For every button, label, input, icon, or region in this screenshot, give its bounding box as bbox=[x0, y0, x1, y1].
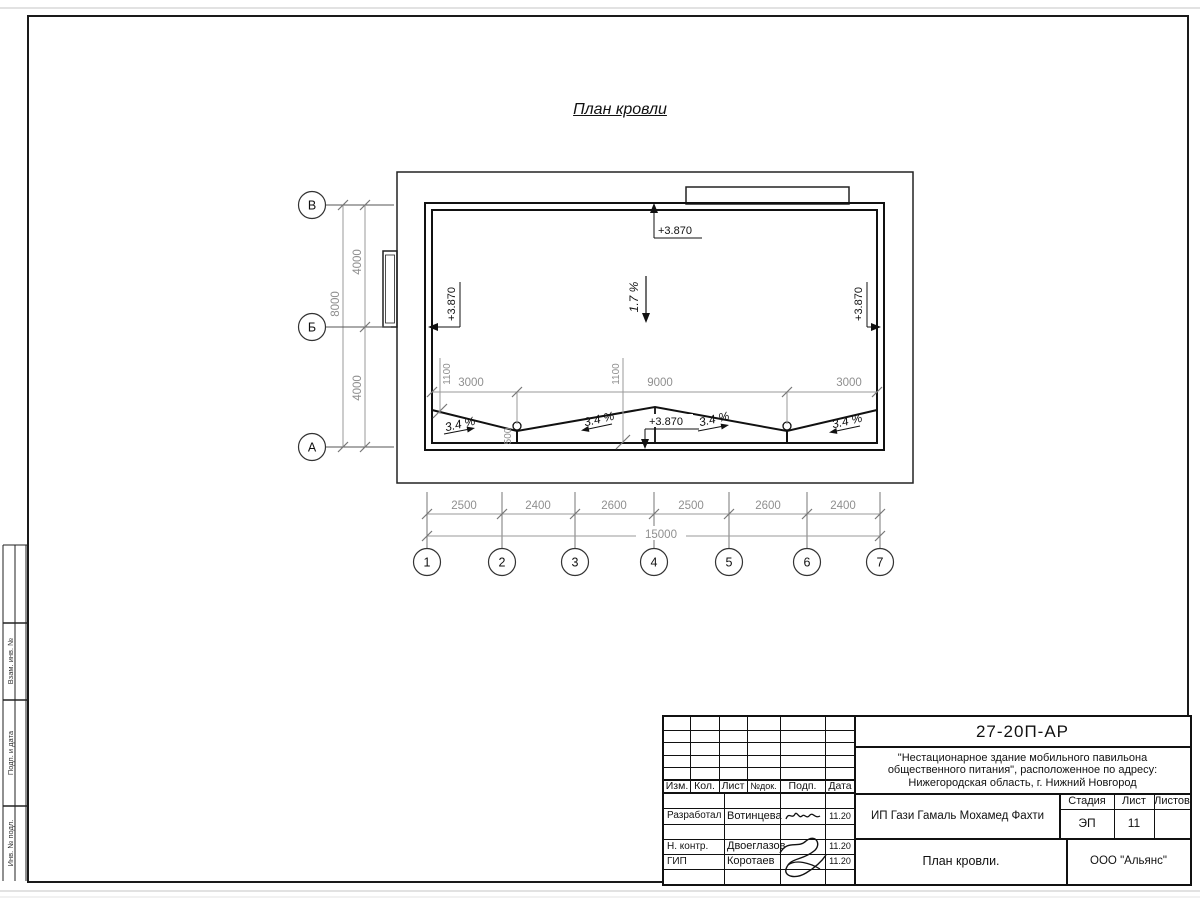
sheet-title: План кровли. bbox=[855, 839, 1067, 884]
dim-4000-upper: 4000 bbox=[352, 249, 364, 275]
dim-2400-1: 2400 bbox=[525, 500, 551, 512]
slope-edge-3: 3.4 % bbox=[697, 409, 730, 431]
dim-2400-2: 2400 bbox=[830, 500, 856, 512]
sheet-label: Лист bbox=[1114, 794, 1154, 809]
client-name: ИП Гази Гамаль Мохамед Фахти bbox=[855, 794, 1060, 839]
elevation-top: +3.870 bbox=[650, 203, 702, 238]
title-block: Изм. Кол. Лист №док. Подп. Дата Разработ… bbox=[662, 715, 1192, 886]
dim-15000: 15000 bbox=[645, 529, 677, 541]
row-date-developer: 11.20 bbox=[825, 808, 855, 824]
axis-col-6: 6 bbox=[804, 556, 811, 570]
axis-row-a: А bbox=[308, 441, 317, 455]
svg-text:+3.870: +3.870 bbox=[649, 416, 683, 428]
dim-500: 500 bbox=[503, 427, 514, 444]
arrow-right-icon bbox=[721, 424, 729, 430]
sheets-label: Листов bbox=[1154, 794, 1190, 809]
dim-2600-1: 2600 bbox=[601, 500, 627, 512]
signature-ncontrol-gip bbox=[776, 835, 830, 881]
row-name-developer: Вотинцева bbox=[724, 808, 780, 824]
arrow-up-icon bbox=[650, 203, 658, 213]
dim-9000: 9000 bbox=[647, 377, 673, 389]
dim-2500-2: 2500 bbox=[678, 500, 704, 512]
axis-col-4: 4 bbox=[651, 556, 658, 570]
sheets-value bbox=[1154, 809, 1190, 839]
stage-value: ЭП bbox=[1060, 809, 1114, 839]
side-label-podp: Подп. и дата bbox=[6, 730, 15, 775]
dim-1100-left: 1100 bbox=[442, 363, 453, 385]
stage-label: Стадия bbox=[1060, 794, 1114, 809]
col-list: Лист bbox=[719, 780, 747, 793]
dim-1100-mid: 1100 bbox=[611, 363, 622, 385]
row-name-ncontrol: Двоеглазов bbox=[724, 839, 780, 854]
slope-edge-4: 3.4 % bbox=[829, 411, 864, 434]
axis-row-b: Б bbox=[308, 321, 316, 335]
sheet-value: 11 bbox=[1114, 809, 1154, 839]
col-kol: Кол. bbox=[690, 780, 719, 793]
axis-col-1: 1 bbox=[424, 556, 431, 570]
dim-4000-lower: 4000 bbox=[352, 375, 364, 401]
slope-edge-2: 3.4 % bbox=[581, 409, 616, 432]
plan-outline bbox=[383, 172, 913, 483]
dim-2600-2: 2600 bbox=[755, 500, 781, 512]
row-role-developer: Разработал bbox=[664, 808, 724, 824]
row-role-gip: ГИП bbox=[664, 854, 724, 869]
axis-row-v: В bbox=[308, 199, 316, 213]
drawing-sheet: План кровли Взам. инв. № Подп. и дата Ин… bbox=[0, 0, 1200, 900]
slope-main: 1.7 % bbox=[627, 276, 650, 323]
col-podp: Подп. bbox=[780, 780, 825, 793]
col-data: Дата bbox=[825, 780, 855, 793]
svg-text:1.7 %: 1.7 % bbox=[627, 281, 641, 312]
company-name: ООО "Альянс" bbox=[1067, 839, 1190, 884]
left-dimensions bbox=[326, 200, 394, 452]
signature-developer bbox=[784, 809, 822, 823]
axis-col-7: 7 bbox=[877, 556, 884, 570]
arrow-down-icon bbox=[642, 313, 650, 323]
row-name-gip: Коротаев bbox=[724, 854, 780, 869]
axis-col-2: 2 bbox=[499, 556, 506, 570]
svg-text:+3.870: +3.870 bbox=[658, 225, 692, 237]
side-label-vzam: Взам. инв. № bbox=[6, 638, 15, 684]
svg-text:+3.870: +3.870 bbox=[446, 287, 458, 321]
doc-number: 27-20П-АР bbox=[855, 717, 1190, 746]
dim-3000-right: 3000 bbox=[836, 377, 862, 389]
row-role-ncontrol: Н. контр. bbox=[664, 839, 724, 854]
dim-2500-1: 2500 bbox=[451, 500, 477, 512]
side-label-inv: Инв. № подл. bbox=[6, 820, 15, 867]
dim-3000-left: 3000 bbox=[458, 377, 484, 389]
project-description: "Нестационарное здание мобильного павиль… bbox=[857, 748, 1188, 793]
dim-8000: 8000 bbox=[330, 291, 342, 317]
svg-text:+3.870: +3.870 bbox=[853, 287, 865, 321]
axis-col-3: 3 bbox=[572, 556, 579, 570]
top-canopy bbox=[686, 187, 849, 204]
col-doc: №док. bbox=[747, 780, 780, 793]
axis-col-5: 5 bbox=[726, 556, 733, 570]
slope-edge-1: 3.4 % bbox=[443, 414, 476, 435]
col-izm: Изм. bbox=[664, 780, 690, 793]
